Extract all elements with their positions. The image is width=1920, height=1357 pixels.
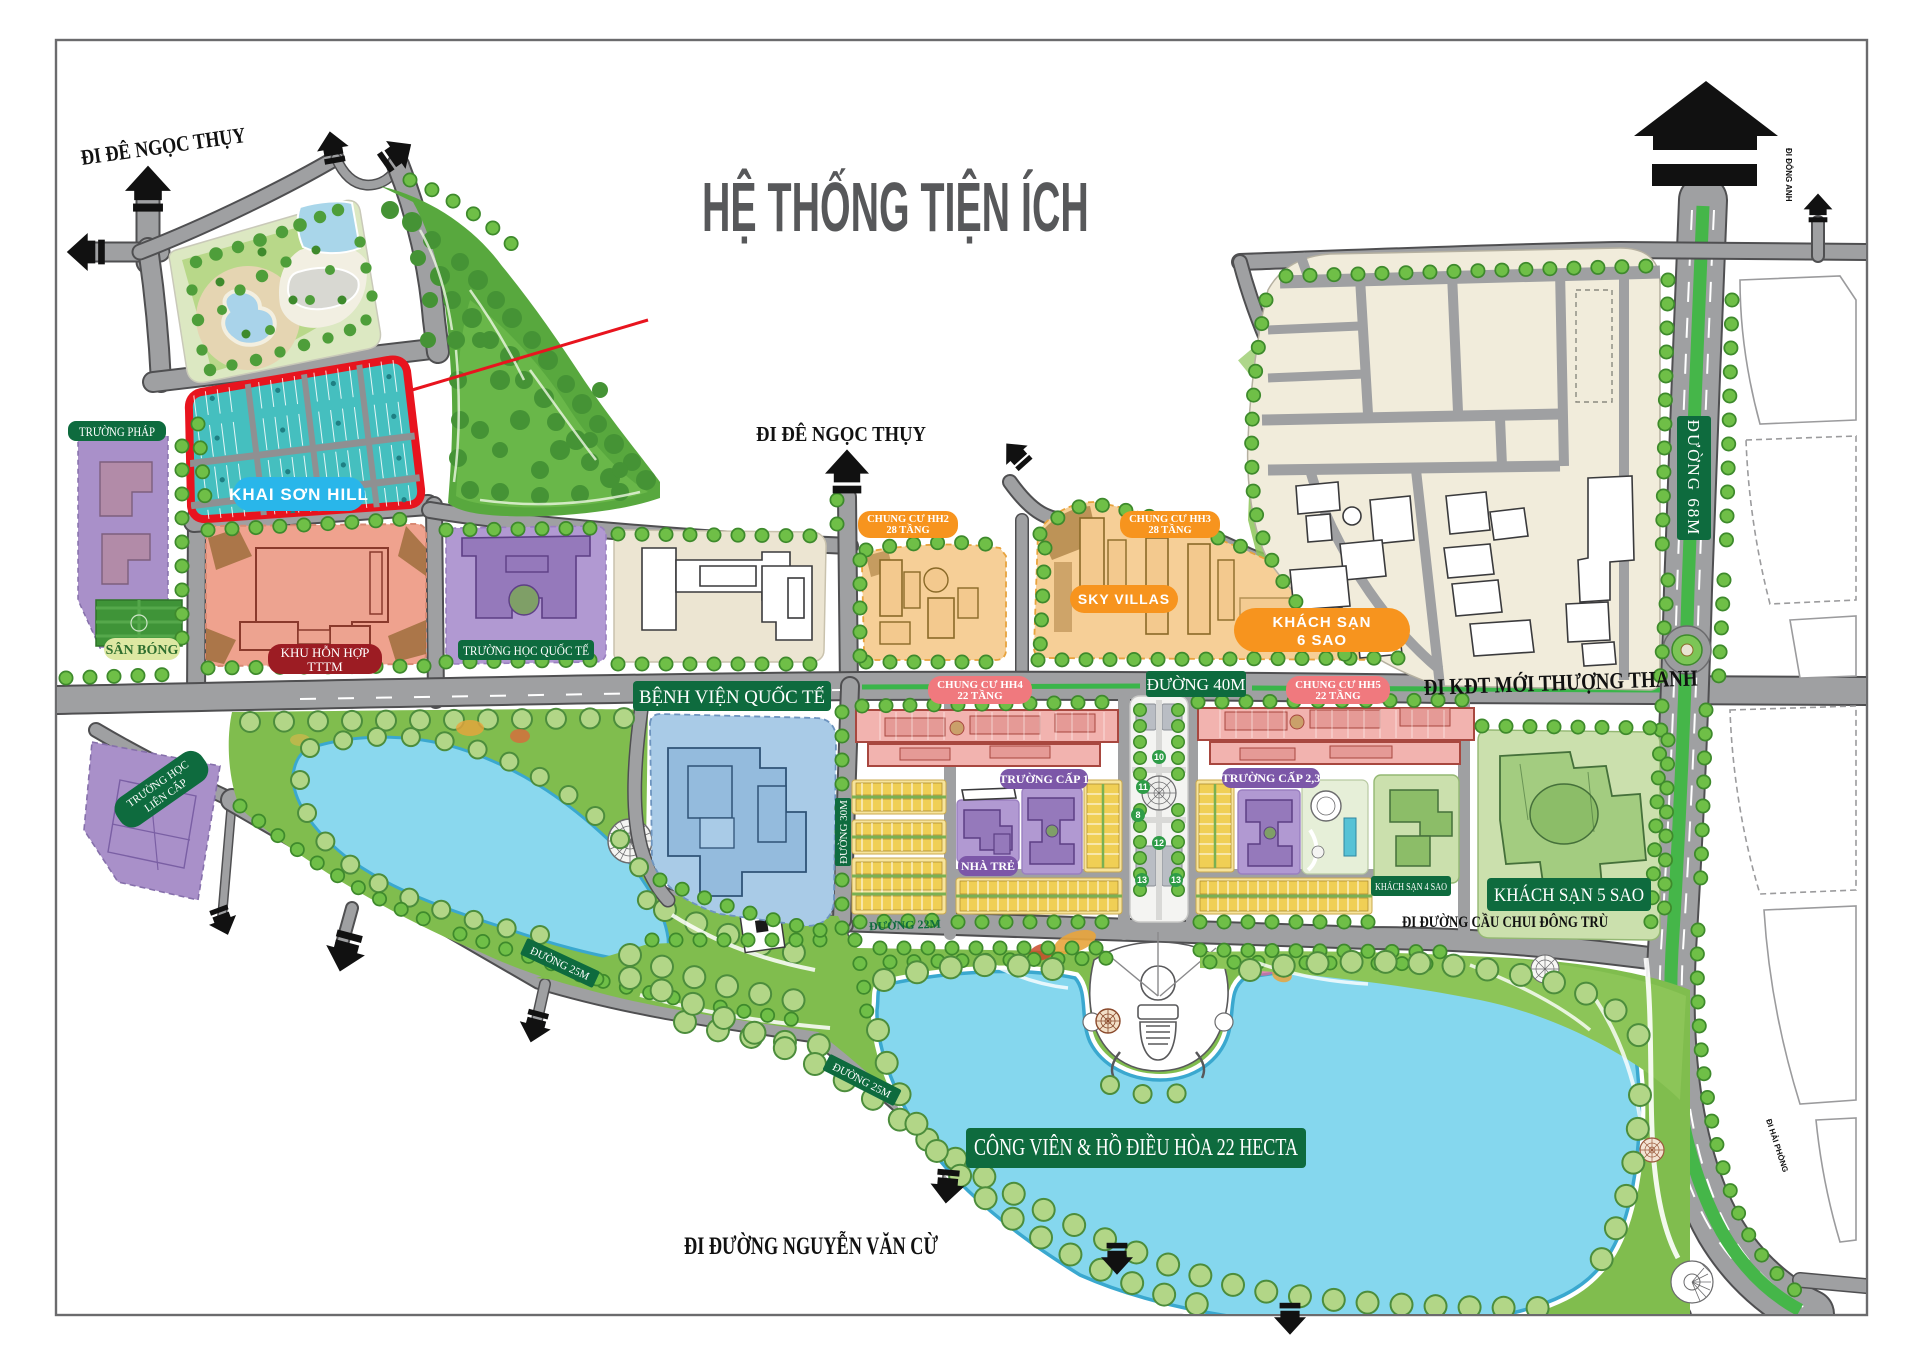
svg-text:ĐƯỜNG 30M: ĐƯỜNG 30M	[838, 800, 850, 864]
svg-text:ĐƯỜNG 68M: ĐƯỜNG 68M	[1684, 420, 1703, 537]
svg-text:13: 13	[1171, 875, 1181, 885]
svg-text:NHÀ TRẺ: NHÀ TRẺ	[961, 859, 1015, 873]
svg-text:ĐI ĐÊ NGỌC THỤY: ĐI ĐÊ NGỌC THỤY	[756, 422, 926, 446]
svg-text:8: 8	[1135, 810, 1140, 820]
svg-text:6 SAO: 6 SAO	[1297, 632, 1347, 649]
svg-text:SÂN BÓNG: SÂN BÓNG	[106, 641, 179, 658]
svg-text:CHUNG CƯ HH2: CHUNG CƯ HH2	[867, 514, 949, 525]
svg-text:ĐƯỜNG 22M: ĐƯỜNG 22M	[869, 917, 941, 934]
svg-text:28 TẦNG: 28 TẦNG	[886, 523, 929, 536]
svg-text:TRƯỜNG CẤP 1: TRƯỜNG CẤP 1	[999, 771, 1089, 786]
svg-text:SKY VILLAS: SKY VILLAS	[1078, 591, 1170, 607]
svg-text:KHÁCH SẠN 4 SAO: KHÁCH SẠN 4 SAO	[1375, 881, 1447, 893]
svg-text:22 TẦNG: 22 TẦNG	[1315, 689, 1361, 702]
svg-text:BỆNH VIỆN QUỐC TẾ: BỆNH VIỆN QUỐC TẾ	[639, 686, 825, 708]
svg-text:22 TẦNG: 22 TẦNG	[957, 689, 1003, 702]
svg-text:KHU HỖN HỢP: KHU HỖN HỢP	[281, 645, 370, 660]
svg-text:CÔNG VIÊN & HỒ ĐIỀU HÒA 22 HEC: CÔNG VIÊN & HỒ ĐIỀU HÒA 22 HECTA	[974, 1134, 1299, 1161]
svg-text:12: 12	[1154, 838, 1164, 848]
svg-text:KHÁCH SẠN 5 SAO: KHÁCH SẠN 5 SAO	[1494, 884, 1644, 906]
svg-text:HỆ THỐNG TIỆN ÍCH: HỆ THỐNG TIỆN ÍCH	[702, 167, 1089, 246]
svg-text:11: 11	[1138, 782, 1148, 792]
svg-text:ĐI ĐƯỜNG NGUYỄN VĂN CỪ: ĐI ĐƯỜNG NGUYỄN VĂN CỪ	[684, 1231, 938, 1260]
svg-text:KHAI SƠN HILL: KHAI SƠN HILL	[229, 485, 369, 504]
svg-text:ĐI ĐÔNG ANH: ĐI ĐÔNG ANH	[1784, 148, 1793, 202]
svg-text:ĐI ĐƯỜNG CẦU CHUI ĐÔNG TRÙ: ĐI ĐƯỜNG CẦU CHUI ĐÔNG TRÙ	[1402, 912, 1608, 931]
svg-text:TTTM: TTTM	[307, 659, 343, 674]
svg-text:TRƯỜNG HỌC QUỐC TẾ: TRƯỜNG HỌC QUỐC TẾ	[463, 643, 589, 658]
svg-text:ĐƯỜNG 40M: ĐƯỜNG 40M	[1147, 675, 1246, 694]
svg-text:KHÁCH SẠN: KHÁCH SẠN	[1273, 614, 1372, 631]
svg-text:10: 10	[1154, 752, 1164, 762]
svg-text:TRƯỜNG PHÁP: TRƯỜNG PHÁP	[79, 424, 155, 439]
svg-text:CHUNG CƯ HH3: CHUNG CƯ HH3	[1129, 514, 1211, 525]
svg-text:TRƯỜNG CẤP 2,3: TRƯỜNG CẤP 2,3	[1222, 770, 1321, 785]
svg-text:13: 13	[1137, 875, 1147, 885]
svg-text:28 TẦNG: 28 TẦNG	[1148, 523, 1191, 536]
